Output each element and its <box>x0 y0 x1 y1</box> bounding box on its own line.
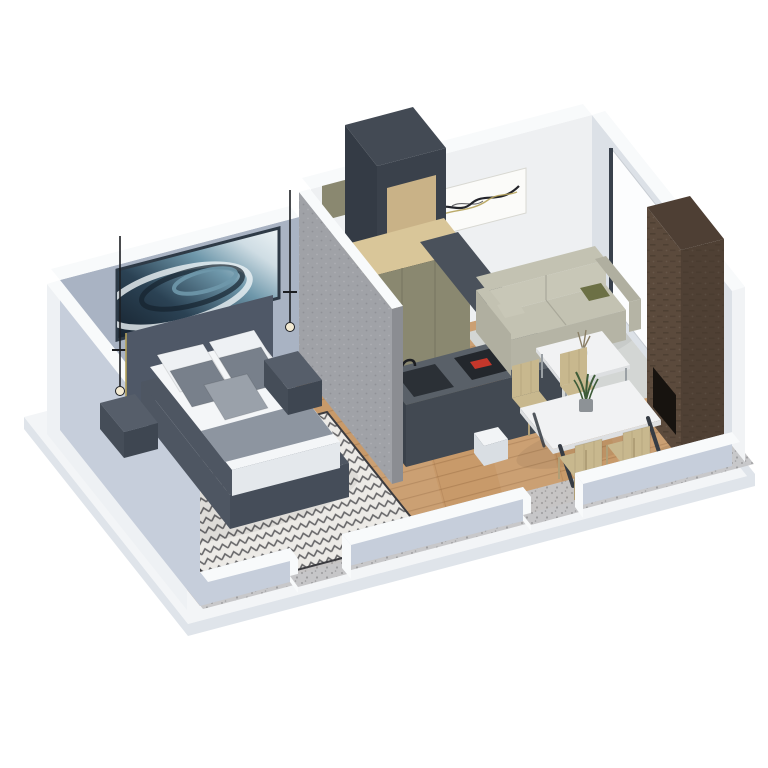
floorplan-stage: 3D isometric cutaway floor plan renderin… <box>0 0 768 768</box>
apartment-floorplan-3d <box>0 0 768 768</box>
sofa-armrest-right <box>629 299 641 332</box>
